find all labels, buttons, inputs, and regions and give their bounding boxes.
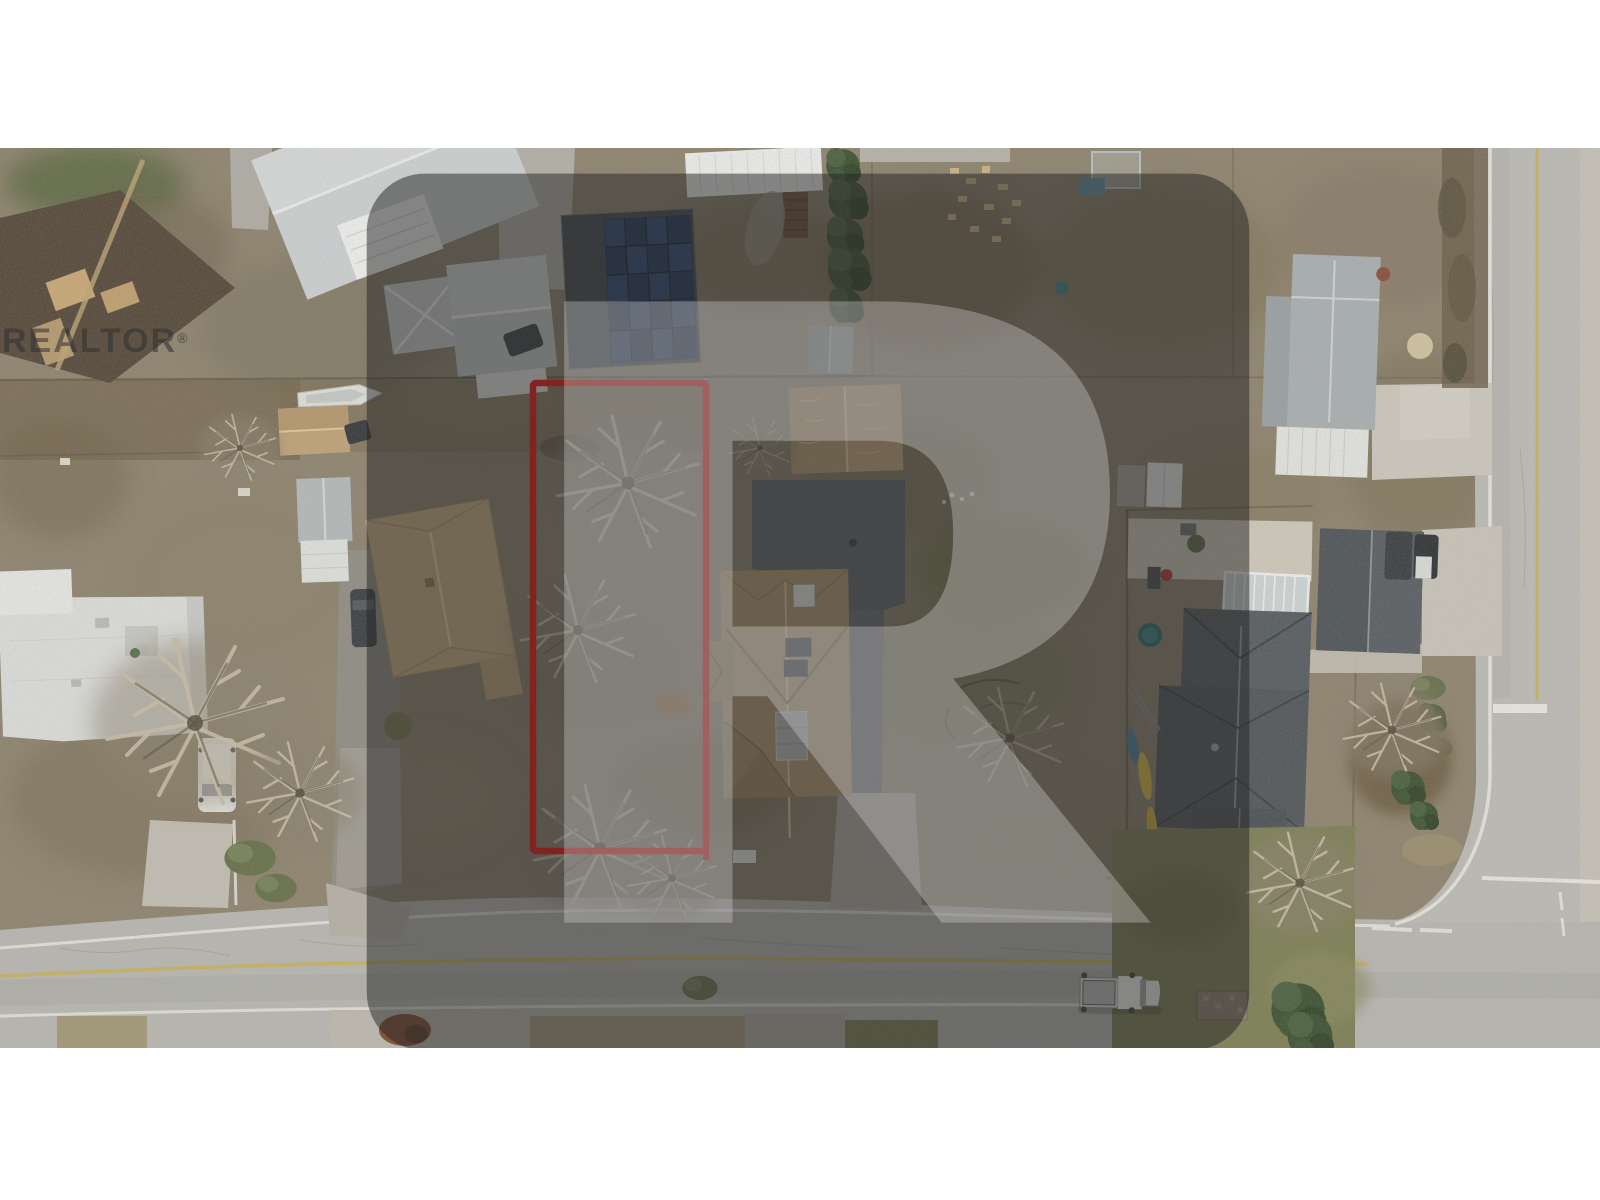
listing-photo-page: REALTOR® <box>0 0 1600 1200</box>
aerial-photo-canvas <box>0 148 1600 1048</box>
aerial-photo: REALTOR® <box>0 148 1600 1048</box>
photo-grain <box>0 148 1600 1048</box>
